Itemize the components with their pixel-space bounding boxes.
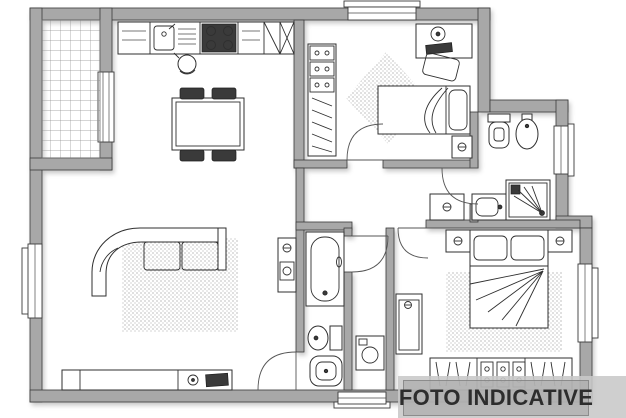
shower xyxy=(506,180,550,220)
single-bed xyxy=(378,86,470,134)
storage-cabinet xyxy=(278,238,296,292)
tiled-floor xyxy=(42,20,100,158)
washing-machine xyxy=(356,336,384,370)
master-bedroom xyxy=(430,230,572,390)
dining-chair xyxy=(212,150,236,161)
balcony-door xyxy=(98,72,114,142)
kettle xyxy=(174,53,196,74)
washbasin xyxy=(472,194,506,220)
bidet-2 xyxy=(310,356,342,386)
window-bottom xyxy=(334,392,390,408)
dining-chair xyxy=(180,88,204,99)
bidet xyxy=(516,114,538,149)
window-top xyxy=(344,1,420,20)
window-left xyxy=(22,244,42,318)
bedroom xyxy=(308,24,472,158)
tv-sideboard xyxy=(62,370,232,390)
door-second-bathroom xyxy=(352,236,388,272)
watermark-band: FOTO INDICATIVE xyxy=(398,376,626,418)
nightstand-left xyxy=(446,230,470,252)
dining-chair xyxy=(212,88,236,99)
floor-plan-svg xyxy=(0,0,626,418)
bedroom-wardrobe xyxy=(308,44,336,156)
tall-cabinet xyxy=(396,294,422,354)
floor-plan-image: FOTO INDICATIVE xyxy=(0,0,626,418)
television xyxy=(206,373,229,387)
dining-table xyxy=(172,98,244,150)
kitchen xyxy=(118,22,294,161)
toilet-2 xyxy=(308,326,342,350)
second-bathroom xyxy=(306,232,344,386)
watermark-panel: FOTO INDICATIVE xyxy=(403,380,589,416)
bathtub xyxy=(306,232,344,306)
gas-stove xyxy=(202,24,236,52)
dining-chair xyxy=(180,150,204,161)
double-bed xyxy=(470,230,548,328)
toilet xyxy=(488,114,510,148)
door-living-room xyxy=(258,352,296,390)
watermark-label: FOTO INDICATIVE xyxy=(399,385,593,411)
bedside-cabinet xyxy=(452,136,472,158)
window-master-bedroom xyxy=(578,264,598,342)
window-bathroom xyxy=(554,124,574,176)
living-room xyxy=(62,228,296,390)
hall-cabinet xyxy=(430,194,464,220)
nightstand-right xyxy=(548,230,572,252)
bathroom xyxy=(472,114,550,220)
balcony xyxy=(42,20,100,158)
desk xyxy=(416,24,472,58)
door-master-bedroom xyxy=(398,228,428,258)
